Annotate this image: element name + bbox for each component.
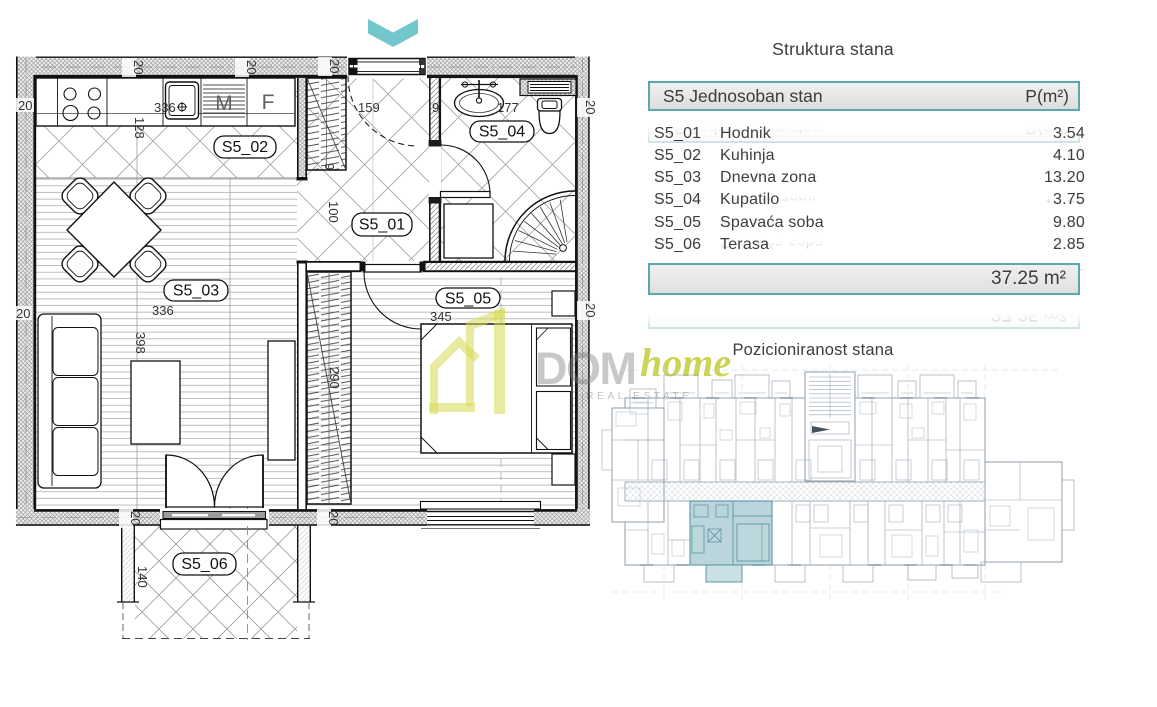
svg-text:20: 20	[18, 98, 32, 113]
svg-text:345: 345	[430, 309, 452, 324]
svg-text:F: F	[262, 91, 275, 114]
svg-text:20: 20	[583, 100, 598, 114]
svg-text:398: 398	[133, 332, 148, 354]
svg-text:290: 290	[327, 367, 342, 389]
svg-text:140: 140	[135, 566, 150, 588]
svg-text:177: 177	[497, 100, 519, 115]
svg-text:20: 20	[326, 511, 341, 525]
svg-text:20: 20	[16, 306, 30, 321]
svg-text:159: 159	[358, 100, 380, 115]
svg-text:20: 20	[583, 303, 598, 317]
svg-text:S5_04: S5_04	[479, 124, 525, 141]
svg-text:336: 336	[154, 100, 176, 115]
svg-text:9: 9	[432, 100, 439, 115]
svg-text:S5_06: S5_06	[181, 556, 227, 573]
svg-text:336: 336	[152, 303, 174, 318]
svg-text:M: M	[215, 92, 233, 115]
svg-text:S5_02: S5_02	[222, 139, 268, 156]
svg-text:20: 20	[327, 59, 342, 73]
svg-text:128: 128	[132, 117, 147, 139]
svg-text:9: 9	[322, 163, 337, 170]
svg-text:100: 100	[326, 201, 341, 223]
svg-text:S5_05: S5_05	[445, 291, 491, 308]
svg-text:20: 20	[131, 60, 146, 74]
svg-text:20: 20	[128, 511, 143, 525]
svg-text:S5_03: S5_03	[173, 283, 219, 300]
svg-text:S5_01: S5_01	[359, 217, 405, 234]
svg-text:20: 20	[244, 60, 259, 74]
